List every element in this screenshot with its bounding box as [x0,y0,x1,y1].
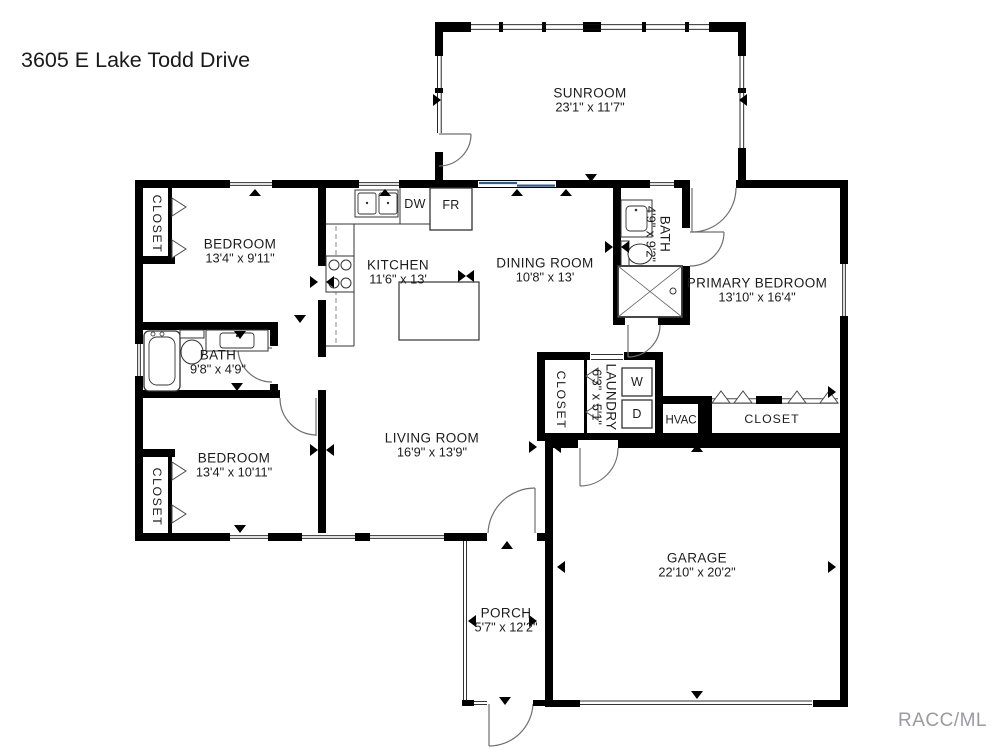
room-name: PORCH [474,605,537,620]
bathtub [144,331,180,391]
garage-door [580,701,812,705]
floorplan-drawing [0,0,1000,750]
cooktop [326,256,354,292]
room-dims: 23'1" x 11'7" [553,100,626,114]
room-label-kitchen: KITCHEN 11'6" x 13' [367,257,429,286]
room-label-laundry: LAUNDRY 6'3" x 5'1" [589,363,618,430]
plan-address: 3605 E Lake Todd Drive [21,48,250,73]
room-name: GARAGE [658,550,735,565]
room-dims: 10'8" x 13' [496,270,593,284]
sunroom-door [439,134,471,166]
bedroom2-door [280,398,316,436]
room-label-hall-bath: BATH 4'9" x 9'2" [643,206,672,262]
dishwasher-label: DW [404,197,425,211]
washer-label: W [631,375,643,389]
closet-label-hall: CLOSET [553,371,567,430]
primary-bath-door [690,232,724,266]
room-dims: 16'9" x 13'9" [385,445,479,459]
primary-entry-door [692,188,736,232]
garage-entry-door [580,448,618,486]
kitchen-island [399,282,479,340]
room-name: PRIMARY BEDROOM [687,275,828,290]
kitchen-sink [355,190,398,217]
room-name: KITCHEN [367,257,429,272]
front-door [488,488,535,533]
sunroom-door-gap [435,133,443,152]
sliding-glass-door [478,181,556,187]
room-label-primary: PRIMARY BEDROOM 13'10" x 16'4" [687,275,828,304]
room-dims: 11'6" x 13' [367,272,429,286]
floorplan-page: 3605 E Lake Todd Drive SUNROOM 23'1" x 1… [0,0,1000,750]
hvac-label: HVAC [665,415,696,428]
shower [618,266,682,317]
room-name: DINING ROOM [496,255,593,270]
room-label-living: LIVING ROOM 16'9" x 13'9" [385,430,479,459]
room-name: SUNROOM [553,85,626,100]
room-dims: 13'10" x 16'4" [687,290,828,304]
porch-door [489,704,533,746]
closet-label-primary: CLOSET [744,413,799,427]
room-label-garage: GARAGE 22'10" x 20'2" [658,550,735,579]
room-label-bedroom-bottom: BEDROOM 13'4" x 10'11" [196,450,272,479]
room-dims: 4'9" x 9'2" [643,206,657,262]
dryer-label: D [632,407,641,421]
room-name: BEDROOM [196,450,272,465]
watermark: RACC/ML [898,710,987,732]
room-label-bedroom-top: BEDROOM 13'4" x 9'11" [204,236,277,265]
room-dims: 9'8" x 4'9" [190,362,246,376]
room-name: LAUNDRY [604,363,619,430]
room-dims: 5'7" x 12'2" [474,620,537,634]
room-label-left-bath: BATH 9'8" x 4'9" [190,347,246,376]
room-dims: 13'4" x 10'11" [196,465,272,479]
closet-label-bedroom-top: CLOSET [149,195,163,254]
room-name: LIVING ROOM [385,430,479,445]
closet-label-bedroom-bottom: CLOSET [149,468,163,527]
room-dims: 13'4" x 9'11" [204,251,277,265]
room-dims: 22'10" x 20'2" [658,565,735,579]
room-name: BATH [190,347,246,362]
room-name: BATH [658,206,673,262]
room-name: BEDROOM [204,236,277,251]
room-label-dining: DINING ROOM 10'8" x 13' [496,255,593,284]
room-label-porch: PORCH 5'7" x 12'2" [474,605,537,634]
refrigerator-label: FR [442,198,459,212]
room-dims: 6'3" x 5'1" [589,363,603,430]
room-label-sunroom: SUNROOM 23'1" x 11'7" [553,85,626,114]
